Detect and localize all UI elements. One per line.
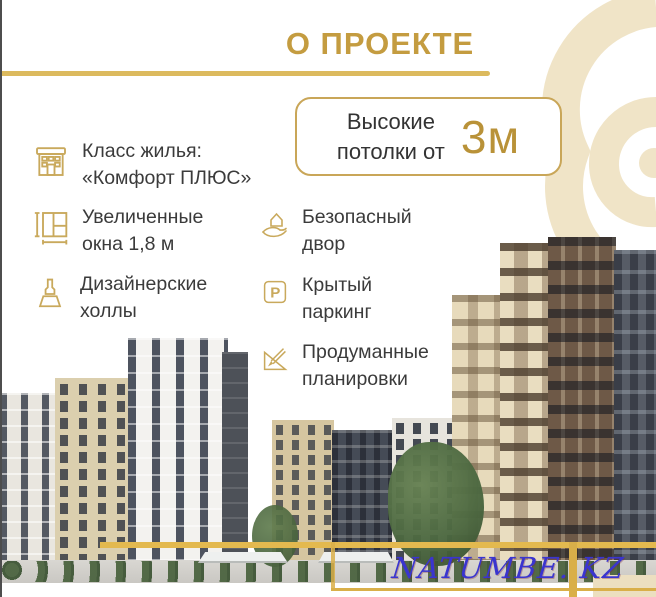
feature-line: «Комфорт ПЛЮС» [82,165,251,192]
feature-line: Увеличенные [82,204,203,231]
feature-line: паркинг [302,299,372,326]
ceiling-height-value: 3м [461,110,520,164]
building-icon [30,140,72,182]
feature-line: холлы [80,298,207,325]
feature-line: Безопасный [302,204,412,231]
building-right-tower-side [614,250,656,585]
ceiling-height-box: Высокие потолки от 3м [295,97,562,176]
left-edge-line [0,0,2,597]
ceiling-height-text: Высокие потолки от [337,107,445,166]
feature-line: планировки [302,366,429,393]
watermark: NATUMBE. KZ [390,551,656,585]
title-underline [0,71,490,76]
ceiling-line2: потолки от [337,139,445,164]
feature-line: Дизайнерские [80,271,207,298]
feature-line: двор [302,231,412,258]
feature-housing-class: Класс жилья: «Комфорт ПЛЮС» [30,138,251,192]
feature-text: Безопасный двор [302,204,412,258]
feature-text: Крытый паркинг [302,272,372,326]
building-right-tower-cream [500,243,548,585]
feature-line: Продуманные [302,339,429,366]
ceiling-line1: Высокие [347,109,435,134]
parking-icon: P [258,274,292,310]
parking-glyph: P [270,285,280,302]
feature-text: Продуманные планировки [302,339,429,393]
feature-designer-halls: Дизайнерские холлы [30,271,207,325]
feature-enlarged-windows: Увеличенные окна 1,8 м [28,204,203,258]
feature-covered-parking: P Крытый паркинг [258,272,372,326]
window-measure-icon [28,206,72,248]
project-poster: { "page": { "title": "О ПРОЕКТЕ" }, "col… [0,0,656,597]
feature-line: Класс жилья: [82,138,251,165]
gold-bottom-line [331,588,656,591]
feature-text: Класс жилья: «Комфорт ПЛЮС» [82,138,251,192]
building-left-tower [128,338,228,572]
feature-smart-layouts: Продуманные планировки [258,339,429,393]
feature-line: Крытый [302,272,372,299]
feature-text: Дизайнерские холлы [80,271,207,325]
ruler-pencil-icon [258,341,292,377]
feature-text: Увеличенные окна 1,8 м [82,204,203,258]
hand-house-icon [256,206,292,244]
paint-brush-icon [30,273,70,315]
building-left-tower-side [222,352,248,570]
building-right-tower-brown [548,237,616,585]
gold-vertical-strip-left [331,542,335,591]
canopy [318,552,394,563]
feature-safe-yard: Безопасный двор [256,204,412,258]
feature-line: окна 1,8 м [82,231,203,258]
canopy [198,552,288,563]
page-title: О ПРОЕКТЕ [150,26,610,62]
